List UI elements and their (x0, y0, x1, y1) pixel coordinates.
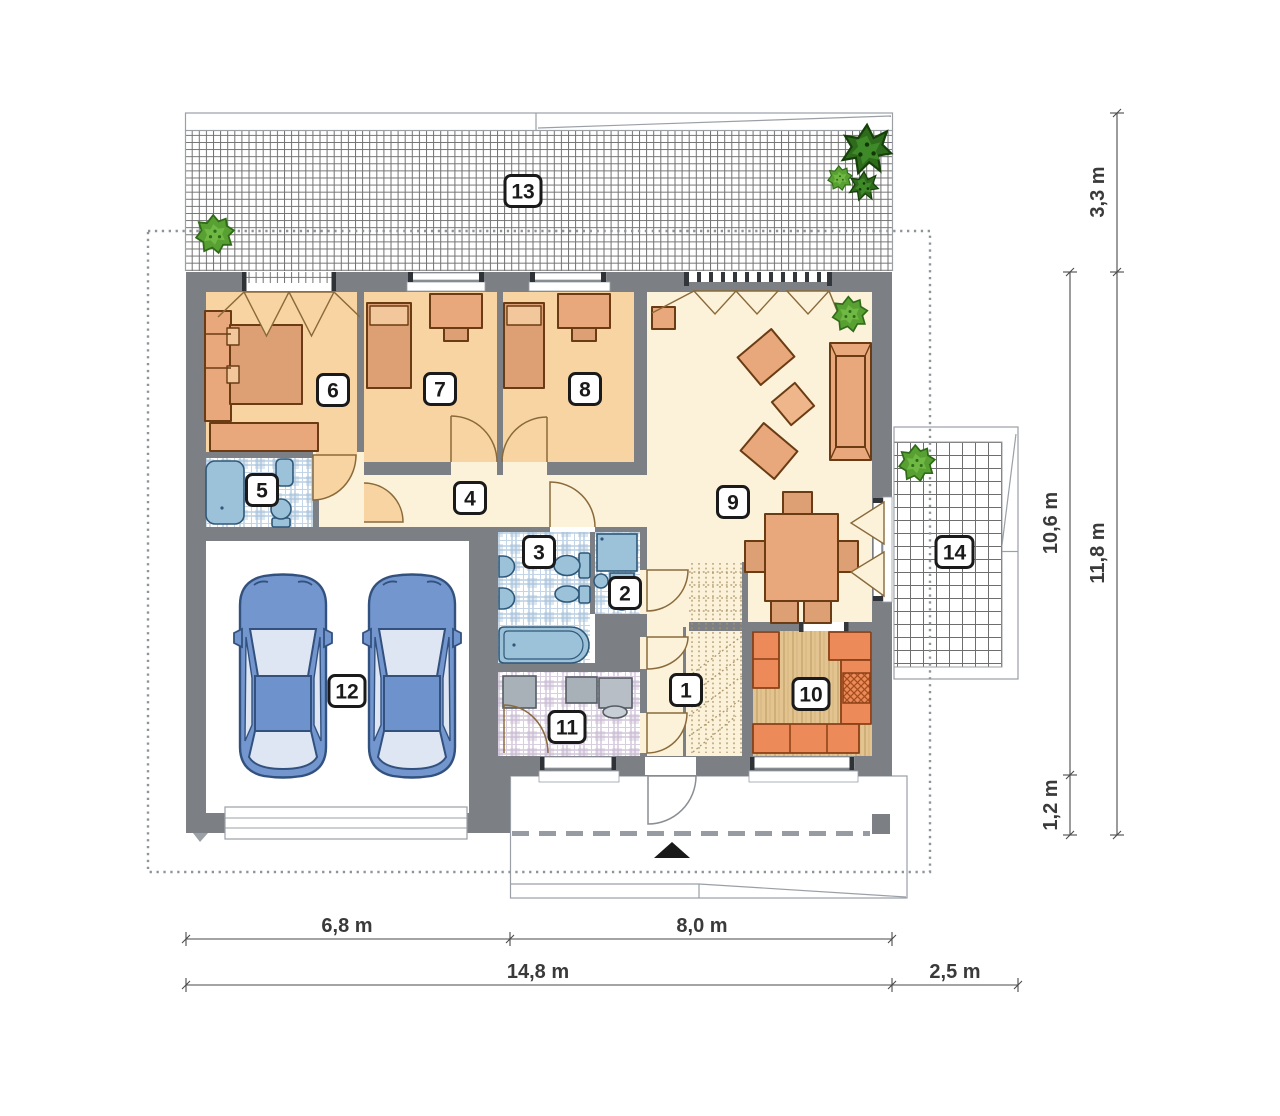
svg-text:1: 1 (680, 680, 692, 703)
svg-text:10,6 m: 10,6 m (1040, 492, 1062, 554)
svg-text:6: 6 (327, 380, 339, 403)
svg-text:11,8 m: 11,8 m (1087, 522, 1109, 583)
svg-text:4: 4 (464, 488, 476, 511)
svg-text:14: 14 (943, 542, 967, 565)
svg-text:3: 3 (533, 542, 545, 565)
svg-text:6,8 m: 6,8 m (321, 915, 372, 937)
svg-text:7: 7 (434, 379, 446, 402)
svg-text:12: 12 (335, 681, 358, 704)
svg-text:5: 5 (256, 480, 268, 503)
svg-text:1,2 m: 1,2 m (1040, 779, 1062, 830)
svg-text:13: 13 (511, 181, 534, 204)
svg-text:14,8 m: 14,8 m (507, 961, 569, 983)
svg-text:10: 10 (799, 684, 822, 707)
svg-text:2,5 m: 2,5 m (929, 961, 980, 983)
svg-text:2: 2 (619, 583, 631, 606)
svg-text:9: 9 (727, 492, 739, 515)
svg-text:8: 8 (579, 379, 591, 402)
svg-text:11: 11 (556, 717, 579, 740)
svg-text:3,3 m: 3,3 m (1087, 166, 1109, 217)
svg-text:8,0 m: 8,0 m (676, 915, 727, 937)
